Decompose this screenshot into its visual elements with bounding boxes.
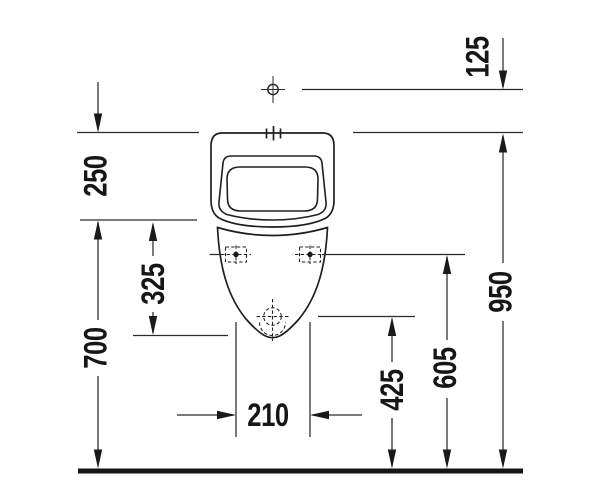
dimension-950: 950	[484, 134, 519, 469]
urinal-dimension-diagram: 125 950 250 700	[0, 0, 600, 500]
dim-label-125: 125	[461, 36, 496, 78]
rim-block-outline	[211, 133, 334, 227]
dimension-210: 210	[177, 399, 362, 434]
dim-label-605: 605	[429, 347, 464, 389]
dimension-325: 325	[137, 222, 172, 335]
dimension-125: 125	[461, 36, 507, 90]
dimension-700: 700	[79, 221, 114, 469]
spec-drawing-sheet: 125 950 250 700	[0, 0, 600, 500]
dim-label-210: 210	[247, 399, 289, 434]
urinal-figure	[210, 76, 335, 341]
inlet-connection-hole	[261, 76, 285, 103]
dim-label-950: 950	[484, 271, 519, 313]
dim-label-325: 325	[137, 263, 172, 305]
dim-label-700: 700	[79, 327, 114, 369]
dimension-250: 250	[79, 82, 114, 197]
dimension-425: 425	[376, 317, 411, 469]
bowl-outline	[218, 228, 328, 338]
dimension-605: 605	[429, 255, 464, 469]
dim-label-425: 425	[376, 369, 411, 411]
dim-label-250: 250	[79, 155, 114, 197]
